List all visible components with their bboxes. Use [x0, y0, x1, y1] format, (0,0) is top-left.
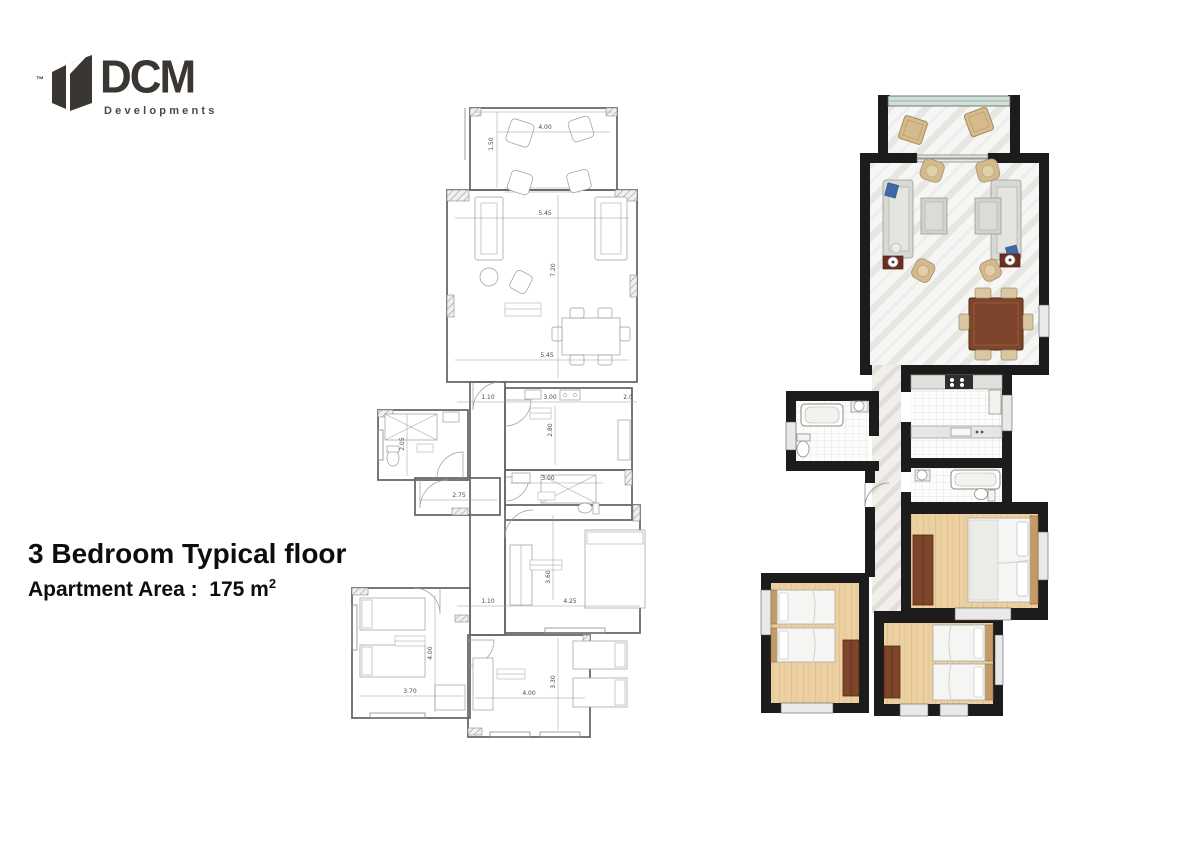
dim-bath1-depth: 2.05	[399, 437, 406, 451]
dim-corridor-length: 2.75	[452, 492, 466, 499]
logo-subtitle: Developments	[104, 105, 218, 117]
dim-master-width: 4.25	[563, 598, 577, 605]
dim-bedroom3-depth: 3.30	[550, 675, 557, 689]
floor-plan-sheet: ™ DCM Developments 3 Bedroom Typical flo…	[0, 0, 1200, 843]
dim-bedroom2-depth: 4.00	[427, 646, 434, 660]
dim-kitchen-width: 3.00	[543, 394, 557, 401]
logo-wordmark: DCM	[100, 52, 194, 105]
dim-bath2-width: 3.00	[541, 475, 555, 482]
trademark-symbol: ™	[36, 75, 44, 84]
dim-bedroom2-width: 3.70	[403, 688, 417, 695]
dim-living-width-lower: 5.45	[540, 352, 554, 359]
dim-living-height: 7.20	[550, 263, 557, 277]
dim-terrace-width: 4.00	[538, 124, 552, 131]
dim-kitchen-depth: 2.80	[547, 423, 554, 437]
apartment-area: Apartment Area : 175 m2	[28, 576, 346, 602]
dim-hall-width-bottom: 1.10	[481, 598, 495, 605]
technical-floor-plan: 4.00 1.50 5.45 7.20 5.45 1.10 3.00 2.0 2…	[345, 100, 675, 745]
rendered-floor-plan	[755, 90, 1055, 740]
title-block: 3 Bedroom Typical floor Apartment Area :…	[28, 538, 346, 602]
tech-terrace-furniture	[505, 115, 595, 148]
tech-bedroom-furniture	[360, 530, 645, 710]
dim-hall-width-top: 1.10	[481, 394, 495, 401]
dim-master-depth: 3.60	[545, 570, 552, 584]
dim-kitchen-right: 2.0	[623, 394, 633, 401]
dim-bedroom3-width: 4.00	[522, 690, 536, 697]
dim-terrace-depth: 1.50	[488, 137, 495, 151]
dcm-logo: ™ DCM Developments	[36, 55, 266, 125]
plan-title: 3 Bedroom Typical floor	[28, 538, 346, 570]
dcm-building-icon	[50, 55, 96, 111]
dim-living-width-upper: 5.45	[538, 210, 552, 217]
